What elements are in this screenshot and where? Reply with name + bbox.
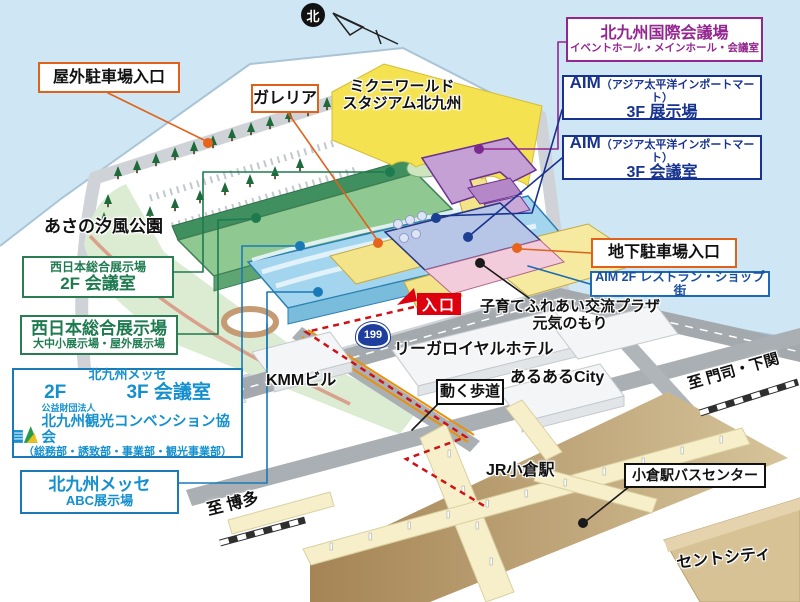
label-jr-kokura-station: JR小倉駅 — [486, 456, 554, 480]
messe-org-type: 公益財団法人 — [42, 403, 241, 413]
kosodate-line2: 元気のもり — [532, 315, 607, 332]
event-plaza-ring — [224, 309, 276, 335]
callout-nishinihon-2f-meeting: 西日本総合展示場 2F 会議室 — [22, 256, 174, 298]
messe-org-departments: （総務部・誘致部・事業部・観光事業部） — [23, 446, 232, 458]
marker-genki-no-mori — [475, 258, 485, 268]
nishinihon-name: 西日本総合展示場 — [31, 319, 167, 338]
label-asano-park: あさの汐風公園 — [44, 212, 163, 237]
messe-title: 北九州メッセ — [88, 368, 166, 383]
callout-messe-abc: 北九州メッセ ABC展示場 — [20, 470, 179, 514]
callout-underground-parking-entrance: 地下駐車場入口 — [591, 238, 737, 268]
messe-abc-name: 北九州メッセ — [49, 475, 151, 494]
marker-bus-center — [578, 518, 588, 528]
stadium-name-line2: スタジアム北九州 — [343, 95, 462, 112]
route-199-badge: 199 — [356, 322, 390, 348]
callout-galleria: ガレリア — [251, 84, 319, 113]
label-mikuni-stadium: ミクニワールド スタジアム北九州 — [326, 78, 478, 113]
label-kosodate-plaza: 子育てふれあい交流プラザ 元気のもり — [470, 299, 670, 332]
aim-paren: （アジア太平洋インポートマート） — [601, 79, 755, 104]
callout-outdoor-parking-entrance: 屋外駐車場入口 — [38, 62, 180, 93]
callout-moving-walkway: 動く歩道 — [436, 379, 504, 405]
marker-conference-center — [474, 144, 484, 154]
messe-2f: 2F — [44, 382, 66, 403]
entrance-sign: 入口 — [417, 293, 461, 315]
compass-north: 北 — [301, 3, 325, 27]
marker-galleria — [373, 238, 383, 248]
marker-messe-2f — [295, 241, 305, 251]
callout-kitakyushu-messe: 北九州メッセ 2F 3F 会議室 公益財団法人 北九州観光コンベンション協会 （… — [12, 368, 243, 458]
conference-center-halls: イベントホール・メインホール・会議室 — [570, 43, 759, 55]
label-kmm-building: KMMビル — [266, 366, 336, 390]
marker-aim-meeting — [463, 232, 473, 242]
kosodate-line1: 子育てふれあい交流プラザ — [480, 298, 660, 315]
nishinihon-2f-floor: 2F 会議室 — [60, 274, 136, 293]
marker-outdoor-parking — [203, 138, 213, 148]
convention-association-logo — [14, 424, 40, 446]
callout-bus-center: 小倉駅バスセンター — [624, 463, 766, 488]
marker-messe-3f — [313, 287, 323, 297]
marker-nishinihon-main — [251, 213, 261, 223]
marker-underground-parking — [512, 243, 522, 253]
messe-abc-halls: ABC展示場 — [66, 494, 133, 509]
messe-3f-meeting: 3F 会議室 — [126, 382, 210, 403]
callout-nishinihon-exhibition: 西日本総合展示場 大中小展示場・屋外展示場 — [20, 315, 178, 355]
callout-international-conference-center: 北九州国際会議場 イベントホール・メインホール・会議室 — [566, 17, 763, 62]
aim-name: AIM — [570, 133, 601, 152]
callout-aim-3f-meeting: AIM（アジア太平洋インポートマート） 3F 会議室 — [562, 135, 762, 180]
marker-aim-exhibition — [431, 213, 441, 223]
callout-aim-3f-exhibition: AIM（アジア太平洋インポートマート） 3F 展示場 — [562, 75, 762, 120]
messe-org-name: 北九州観光コンベンション協会 — [42, 414, 241, 446]
stadium-name-line1: ミクニワールド — [349, 78, 454, 95]
conference-center-name: 北九州国際会議場 — [600, 25, 728, 43]
kokura-area-access-map: 北 屋外駐車場入口 ガレリア ミクニワールド スタジアム北九州 北九州国際会議場… — [0, 0, 800, 602]
label-rihga-hotel: リーガロイヤルホテル — [394, 335, 554, 359]
aim-exhibition-floor: 3F 展示場 — [626, 104, 697, 122]
callout-aim-2f-restaurant: AIM 2F レストラン・ショップ街 — [590, 271, 770, 297]
aim-meeting-floor: 3F 会議室 — [626, 164, 697, 182]
marker-nishinihon-2f — [385, 167, 395, 177]
nishinihon-halls: 大中小展示場・屋外展示場 — [33, 338, 165, 350]
aim-paren: （アジア太平洋インポートマート） — [601, 139, 755, 164]
label-aruaru-city: あるあるCity — [510, 363, 604, 387]
aim-name: AIM — [570, 73, 601, 92]
nishinihon-name: 西日本総合展示場 — [50, 261, 146, 274]
